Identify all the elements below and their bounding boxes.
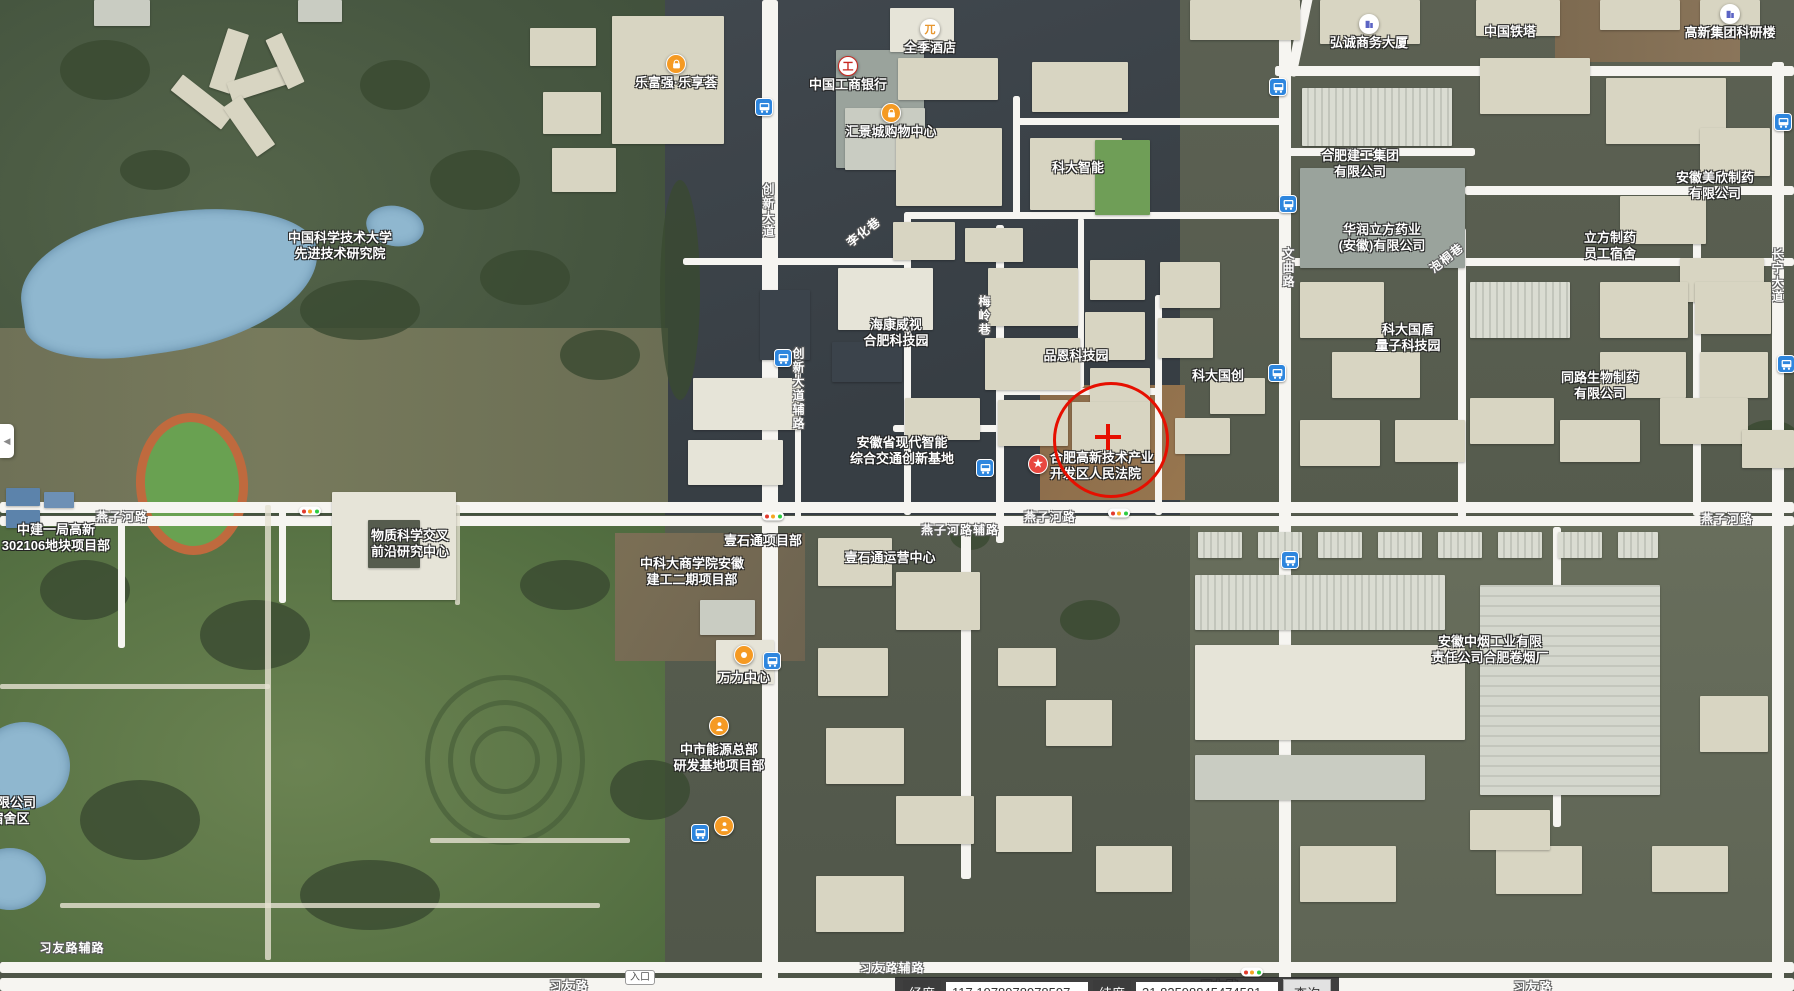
poi-label-line: 高新集团科研楼 <box>1684 25 1775 41</box>
map-label-line: 有限公司 <box>1676 186 1754 202</box>
road-label: 习友路辅路 <box>39 942 104 955</box>
map-label-line: 302106地块项目部 <box>2 538 110 554</box>
road-label: 习友路 <box>549 980 588 991</box>
building <box>700 600 755 635</box>
yellow-light <box>1250 970 1254 974</box>
map-label: 中市能源总部研发基地项目部 <box>673 742 764 774</box>
entrance-badge: 入口 <box>625 970 655 985</box>
map-label: 科大国盾量子科技园 <box>1375 322 1440 354</box>
map-label: 安徽省现代智能综合交通创新基地 <box>850 435 954 467</box>
building <box>1700 352 1768 398</box>
road-label: 创新大道 <box>761 183 774 239</box>
building <box>1160 262 1220 308</box>
road <box>683 258 908 265</box>
building <box>94 0 150 26</box>
traffic-light-icon <box>1241 968 1263 977</box>
poi-label-line: 中国工商银行 <box>809 77 887 93</box>
map-label-line: 万力中心 <box>718 670 770 686</box>
poi-marker[interactable] <box>1720 4 1740 24</box>
map-label-line: 立方制药 <box>1584 230 1636 246</box>
map-label: 立方制药员工宿舍 <box>1584 230 1636 262</box>
map-label: 科大国创 <box>1192 368 1244 384</box>
poi-marker[interactable] <box>709 716 729 736</box>
bus-icon <box>1780 358 1793 371</box>
building <box>893 222 955 260</box>
map-label: 安徽美欣制药有限公司 <box>1676 170 1754 202</box>
bus-icon <box>694 827 707 840</box>
map-label-line: 中国铁塔 <box>1484 24 1536 40</box>
road <box>279 503 286 603</box>
map-label-line: 研发基地项目部 <box>673 758 764 774</box>
poi-marker[interactable] <box>714 816 734 836</box>
building <box>1302 88 1452 146</box>
tree-cluster <box>360 60 430 110</box>
tree-cluster <box>300 860 440 930</box>
map-label-line: (安徽)有限公司 <box>1339 238 1426 254</box>
map-label: 品恩科技园 <box>1043 348 1108 364</box>
bus-icon <box>758 101 771 114</box>
building <box>1300 420 1380 466</box>
road <box>762 0 778 991</box>
poi-label: 弘诚商务大厦 <box>1330 35 1408 51</box>
tree-cluster <box>300 280 420 340</box>
map-label-line: 综合交通创新基地 <box>850 451 954 467</box>
map-label-line: 建工二期项目部 <box>640 572 744 588</box>
map-label-line: 壹石通项目部 <box>724 533 802 549</box>
building <box>896 572 980 630</box>
tree-cluster <box>480 250 570 305</box>
map-label-line: 科大国创 <box>1192 368 1244 384</box>
map-label-line: 有限公司 <box>1321 164 1399 180</box>
road <box>1013 118 1281 125</box>
tree-cluster <box>560 330 640 380</box>
building <box>1190 0 1300 40</box>
building <box>1300 846 1396 902</box>
building <box>1618 532 1658 558</box>
map-label: 物质科学交叉前沿研究中心 <box>371 528 449 560</box>
building <box>1695 282 1771 334</box>
tree-cluster <box>80 780 200 860</box>
map-label-line: 员工宿舍 <box>1584 246 1636 262</box>
map-label: 中国科学技术大学先进技术研究院 <box>288 230 392 262</box>
road-label: 燕子河路 <box>1701 513 1753 526</box>
building <box>1496 846 1582 894</box>
building <box>1558 532 1602 558</box>
map-label-line: 海康威视 <box>863 317 928 333</box>
bank-icon: 工 <box>843 58 854 74</box>
traffic-light-icon <box>762 512 784 521</box>
bus-icon <box>777 352 790 365</box>
map-label-line: 安徽省现代智能 <box>850 435 954 451</box>
map-label: 壹石通项目部 <box>724 533 802 549</box>
garden-maze <box>470 726 540 794</box>
building <box>552 148 616 192</box>
poi-marker[interactable] <box>1359 14 1379 34</box>
bus-stop-icon[interactable] <box>1279 195 1297 213</box>
latitude-value[interactable]: 31.83598845474581 <box>1136 982 1278 991</box>
bus-icon <box>1272 81 1285 94</box>
map-label-line: 科大智能 <box>1052 160 1104 176</box>
poi-marker[interactable]: 工 <box>838 56 858 76</box>
building <box>905 398 980 440</box>
red-light <box>302 509 306 513</box>
target-marker-circle <box>1053 382 1169 498</box>
tree-cluster <box>40 560 130 620</box>
green-light <box>315 509 319 513</box>
star-icon: ★ <box>1033 459 1043 470</box>
bus-stop-icon[interactable] <box>755 98 773 116</box>
bus-icon <box>1284 554 1297 567</box>
building <box>693 378 801 430</box>
map-label: 安徽中烟工业有限责任公司合肥卷烟厂 <box>1431 634 1548 666</box>
building <box>1158 318 1213 358</box>
poi-marker[interactable] <box>881 103 901 123</box>
map-label-line: 安徽中烟工业有限 <box>1431 634 1548 650</box>
building <box>1195 645 1465 740</box>
longitude-value[interactable]: 117.1978978978597 <box>946 982 1088 991</box>
map-label-line: 量子科技园 <box>1375 338 1440 354</box>
shopping-bag-icon <box>886 108 897 119</box>
bus-stop-icon[interactable] <box>1268 364 1286 382</box>
road-label: 习友路 <box>1513 981 1552 991</box>
map-label: 科大智能 <box>1052 160 1104 176</box>
green-light <box>1124 511 1128 515</box>
map-label-line: 责任公司合肥卷烟厂 <box>1431 650 1548 666</box>
bus-stop-icon[interactable] <box>763 652 781 670</box>
map-label-line: 品恩科技园 <box>1043 348 1108 364</box>
bus-stop-icon[interactable] <box>1774 113 1792 131</box>
map-label: 中国铁塔 <box>1484 24 1536 40</box>
satellite-map[interactable]: 中国科学技术大学先进技术研究院科大智能中国铁塔合肥建工集团有限公司华润立方药业(… <box>0 0 1794 991</box>
map-label: 有限公司宿舍区 <box>0 795 36 827</box>
map-label-line: 华润立方药业 <box>1339 222 1426 238</box>
bus-icon <box>1282 198 1295 211</box>
building <box>530 28 596 66</box>
map-label-line: 壹石通运营中心 <box>844 550 935 566</box>
query-button[interactable]: 查询 <box>1283 979 1331 991</box>
panel-collapse-button[interactable]: ◀ <box>0 424 14 458</box>
map-label: 万力中心 <box>718 670 770 686</box>
map-label: 同路生物制药有限公司 <box>1561 370 1639 402</box>
building-icon <box>1724 8 1736 20</box>
building <box>44 492 74 508</box>
bus-stop-icon[interactable] <box>1281 551 1299 569</box>
bus-icon <box>766 655 779 668</box>
hotel-icon: 兀 <box>925 21 936 37</box>
map-label: 中科大商学院安徽建工二期项目部 <box>640 556 744 588</box>
map-label-line: 有限公司 <box>1561 386 1639 402</box>
building <box>996 796 1072 852</box>
road <box>1279 0 1291 991</box>
map-label-line: 合肥建工集团 <box>1321 148 1399 164</box>
building <box>1480 585 1660 795</box>
longitude-label: 经度 <box>903 980 941 991</box>
map-label-line: 中建一局高新 <box>2 522 110 538</box>
building <box>688 440 783 485</box>
green-light <box>1257 970 1261 974</box>
map-label-line: 前沿研究中心 <box>371 544 449 560</box>
bus-stop-icon[interactable] <box>774 349 792 367</box>
building <box>1470 398 1554 444</box>
tree-cluster <box>1060 600 1120 640</box>
yellow-light <box>1117 511 1121 515</box>
building <box>818 648 888 696</box>
bus-icon <box>1777 116 1790 129</box>
building <box>1470 810 1550 850</box>
poi-label-line: 汇景城购物中心 <box>845 124 936 140</box>
tree-cluster <box>660 180 700 400</box>
building <box>543 92 601 134</box>
map-label-line: 合肥科技园 <box>863 333 928 349</box>
building <box>1660 398 1748 444</box>
map-label-line: 中国科学技术大学 <box>288 230 392 246</box>
poi-marker[interactable] <box>666 54 686 74</box>
coordinate-statusbar: 经度 117.1978978978597 纬度 31.8359884547458… <box>895 977 1339 991</box>
map-label-line: 物质科学交叉 <box>371 528 449 544</box>
building <box>1300 282 1384 338</box>
road-label: 文曲路 <box>1281 247 1294 289</box>
building <box>998 648 1056 686</box>
worker-icon <box>719 821 730 832</box>
poi-label: 中国工商银行 <box>809 77 887 93</box>
red-light <box>1244 970 1248 974</box>
poi-label-line: 乐富强·乐享荟 <box>635 75 717 91</box>
building <box>6 488 40 506</box>
tree-cluster <box>120 150 190 190</box>
building <box>1438 532 1482 558</box>
poi-label: 乐富强·乐享荟 <box>635 75 717 91</box>
map-label: 壹石通运营中心 <box>844 550 935 566</box>
building <box>1700 696 1768 752</box>
building <box>1198 532 1242 558</box>
road-label: 燕子河路辅路 <box>921 524 999 537</box>
red-light <box>765 514 769 518</box>
yellow-light <box>771 514 775 518</box>
map-label-line: 宿舍区 <box>0 811 36 827</box>
poi-marker[interactable] <box>734 645 754 665</box>
park-path <box>60 903 600 908</box>
building <box>898 58 998 100</box>
road <box>118 503 125 648</box>
road-label: 燕子河路 <box>1024 511 1076 524</box>
bus-stop-icon[interactable] <box>1269 78 1287 96</box>
building <box>1652 846 1728 892</box>
poi-marker[interactable]: ★ <box>1028 454 1048 474</box>
building <box>1700 128 1770 176</box>
building <box>1032 62 1128 112</box>
building <box>1046 700 1112 746</box>
road-label: 习友路辅路 <box>859 962 924 975</box>
building <box>965 228 1023 262</box>
park-path <box>0 684 270 689</box>
poi-label-line: 弘诚商务大厦 <box>1330 35 1408 51</box>
bus-icon <box>979 462 992 475</box>
map-label-line: 中市能源总部 <box>673 742 764 758</box>
bus-stop-icon[interactable] <box>691 824 709 842</box>
shopping-bag-icon <box>671 59 682 70</box>
traffic-light-icon <box>1108 509 1130 518</box>
poi-label-line: 全季酒店 <box>904 40 956 56</box>
latitude-label: 纬度 <box>1093 980 1131 991</box>
road-label: 梅岭巷 <box>977 295 990 337</box>
poi-label: 全季酒店 <box>904 40 956 56</box>
building <box>1095 140 1150 215</box>
green-light <box>778 514 782 518</box>
building <box>1560 420 1640 462</box>
building <box>1195 575 1445 630</box>
building-icon <box>1363 18 1375 30</box>
building <box>1318 532 1362 558</box>
park-path <box>265 505 271 960</box>
building <box>1090 260 1145 300</box>
building <box>896 796 974 844</box>
building <box>826 728 904 784</box>
building <box>1600 0 1680 30</box>
road <box>1458 228 1466 518</box>
yellow-light <box>308 509 312 513</box>
map-label: 合肥建工集团有限公司 <box>1321 148 1399 180</box>
dot-icon <box>739 650 749 660</box>
road <box>905 212 1283 219</box>
map-label-line: 同路生物制药 <box>1561 370 1639 386</box>
tree-cluster <box>60 40 150 100</box>
building <box>816 876 904 932</box>
poi-marker[interactable]: 兀 <box>920 19 940 39</box>
building <box>1175 418 1230 454</box>
bus-stop-icon[interactable] <box>976 459 994 477</box>
map-label-line: 中科大商学院安徽 <box>640 556 744 572</box>
building <box>1470 282 1570 338</box>
building <box>1378 532 1422 558</box>
map-label: 海康威视合肥科技园 <box>863 317 928 349</box>
map-label-line: 有限公司 <box>0 795 36 811</box>
tree-cluster <box>200 600 310 670</box>
traffic-light-icon <box>299 507 321 516</box>
worker-icon <box>714 721 725 732</box>
road <box>1013 96 1020 218</box>
bus-stop-icon[interactable] <box>1777 355 1794 373</box>
map-label-line: 安徽美欣制药 <box>1676 170 1754 186</box>
poi-label: 汇景城购物中心 <box>845 124 936 140</box>
building <box>1480 58 1590 114</box>
red-light <box>1111 511 1115 515</box>
target-marker-crosshair-v <box>1106 424 1110 450</box>
map-label-line: 科大国盾 <box>1375 322 1440 338</box>
tree-cluster <box>520 560 610 610</box>
tree-cluster <box>430 150 520 210</box>
building <box>298 0 342 22</box>
road-label: 创新大道辅路 <box>791 347 804 431</box>
map-label: 中建一局高新302106地块项目部 <box>2 522 110 554</box>
building <box>1395 420 1465 462</box>
park-path <box>430 838 630 843</box>
building <box>1195 755 1425 800</box>
road <box>1772 62 1784 991</box>
building <box>1742 430 1794 468</box>
road-label: 长宁大道 <box>1770 248 1783 304</box>
building <box>1600 282 1688 338</box>
building <box>1498 532 1542 558</box>
bus-icon <box>1271 367 1284 380</box>
poi-label: 高新集团科研楼 <box>1684 25 1775 41</box>
map-label: 华润立方药业(安徽)有限公司 <box>1339 222 1426 254</box>
map-label-line: 先进技术研究院 <box>288 246 392 262</box>
building <box>985 338 1080 390</box>
building <box>1096 846 1172 892</box>
building <box>1332 352 1420 398</box>
building <box>988 268 1078 326</box>
